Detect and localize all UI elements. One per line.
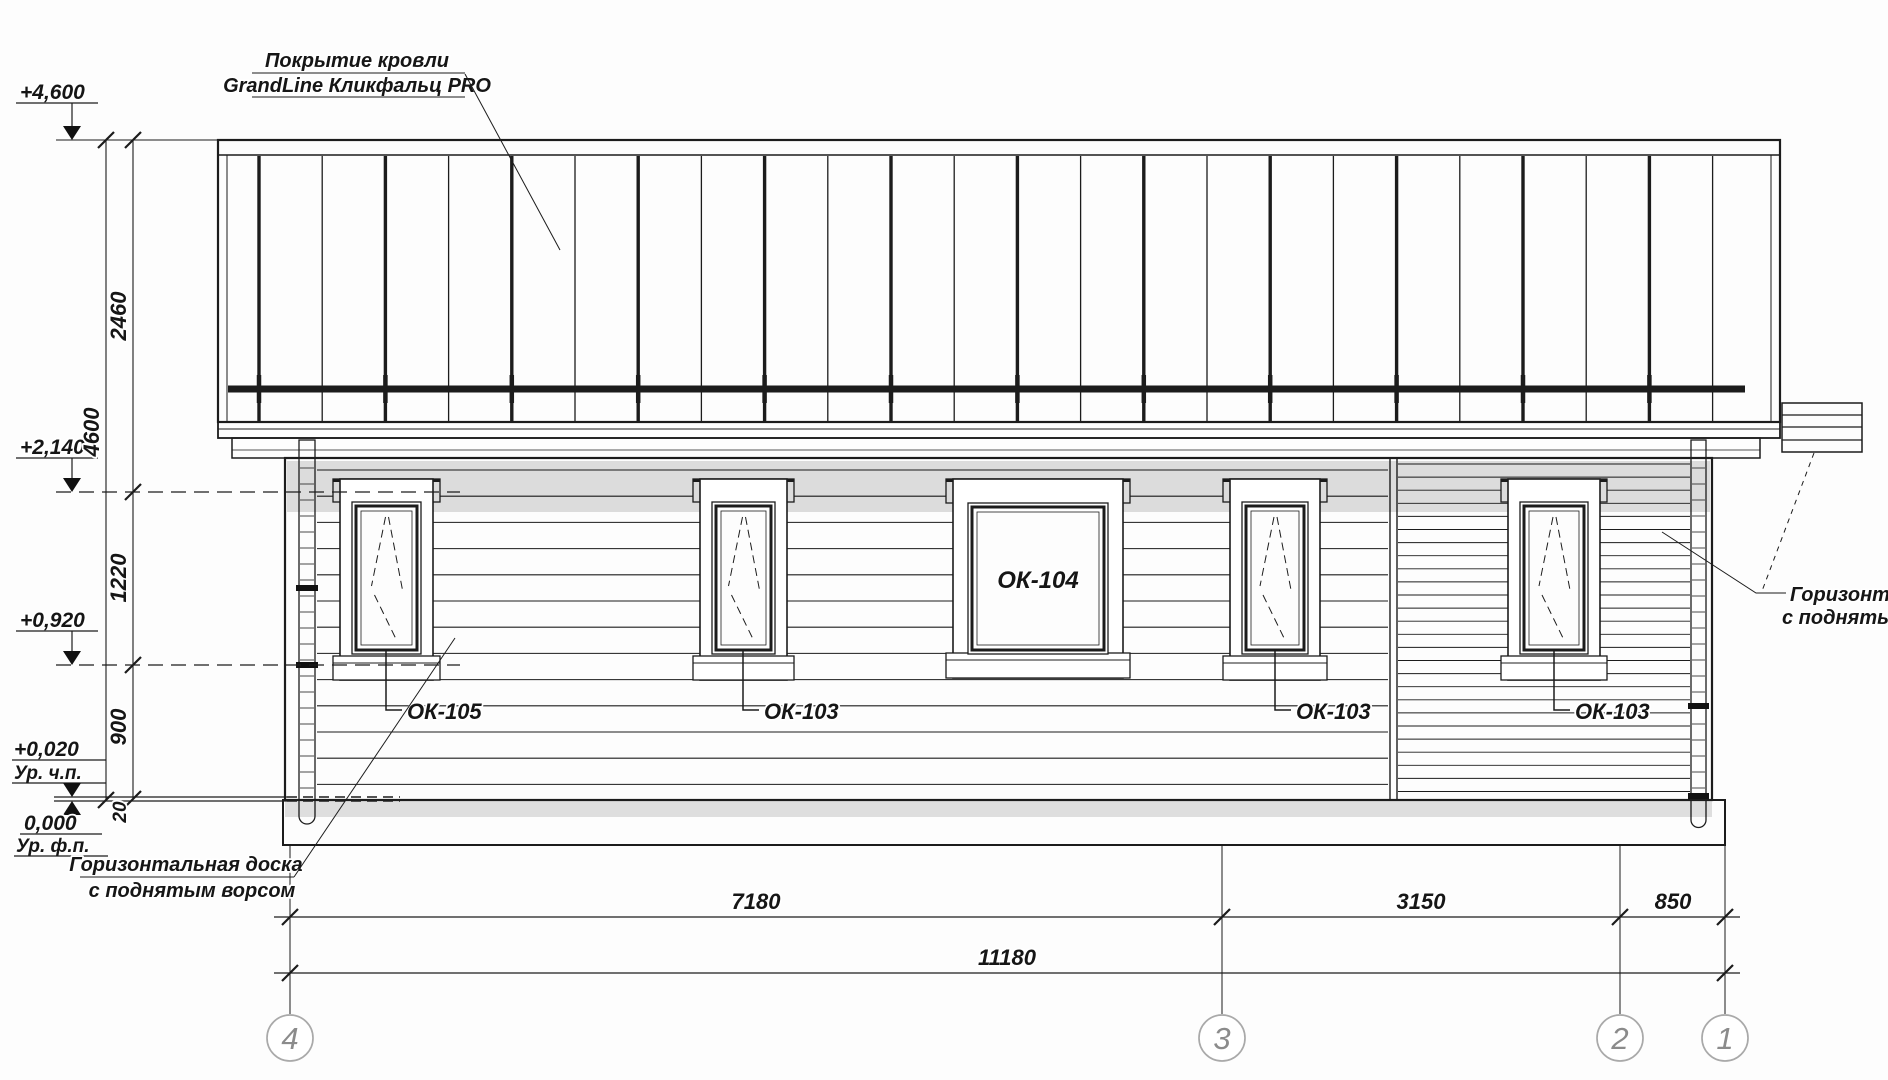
dim-20: 20 bbox=[110, 801, 131, 824]
roof bbox=[218, 140, 1780, 458]
elevation-mark-0000: 0,000 bbox=[24, 812, 77, 835]
axis-bubble-3: 3 bbox=[1213, 1021, 1230, 1056]
roof-note-line2: GrandLine Кликфальц PRO bbox=[223, 75, 491, 97]
dim-900: 900 bbox=[106, 708, 131, 745]
axis-bubble-4: 4 bbox=[281, 1021, 298, 1056]
axis-bubble-2: 2 bbox=[1610, 1021, 1628, 1056]
roof-note-line1: Покрытие кровли bbox=[265, 50, 449, 72]
elevation-mark-2140: +2,140 bbox=[20, 436, 85, 459]
window-label-ok103-3: ОК-103 bbox=[1575, 699, 1650, 724]
window-label-ok103-1: ОК-103 bbox=[764, 699, 839, 724]
elevation-triangle-icon bbox=[63, 126, 81, 140]
board-note-right-leader-dashed bbox=[1762, 453, 1814, 591]
dimension-ticks bbox=[98, 132, 141, 808]
window-ok103-3 bbox=[1501, 479, 1607, 680]
board-note-right-line2: с поднятым bbox=[1782, 607, 1888, 629]
elevation-triangle-icon bbox=[63, 783, 81, 797]
window-label-ok103-2: ОК-103 bbox=[1296, 699, 1371, 724]
window-label-ok105: ОК-105 bbox=[407, 699, 482, 724]
terrace-boards-right bbox=[1782, 403, 1862, 452]
axis-bubble-1: 1 bbox=[1716, 1021, 1733, 1056]
roof-standing-seams bbox=[259, 156, 1713, 421]
facade-elevation-drawing: ОК-105 ОК-103 ОК-104 ОК-103 ОК-103 +4,60… bbox=[0, 0, 1888, 1080]
elevation-mark-0020-label: Ур. ч.п. bbox=[14, 763, 82, 784]
elevation-triangle-icon bbox=[63, 478, 81, 492]
vertical-dimensions: 2460 4600 1220 900 20 bbox=[79, 132, 141, 824]
dim-7180: 7180 bbox=[732, 889, 782, 914]
foundation-platform bbox=[283, 800, 1725, 845]
roof-soffit bbox=[232, 438, 1760, 458]
elevation-mark-4600: +4,600 bbox=[20, 81, 85, 104]
elevation-mark-0020: +0,020 bbox=[14, 738, 79, 761]
window-ok105 bbox=[333, 479, 440, 680]
board-note-right-line1: Горизонтал bbox=[1790, 584, 1888, 606]
horizontal-dimensions: 7180 3150 850 11180 4 3 2 1 bbox=[267, 845, 1748, 1061]
roof-fascia bbox=[218, 422, 1780, 438]
dim-850: 850 bbox=[1655, 889, 1692, 914]
board-note-left-line1: Горизонтальная доска bbox=[69, 854, 302, 876]
dim-11180: 11180 bbox=[978, 945, 1037, 970]
window-ok103-1 bbox=[693, 479, 794, 680]
window-label-ok104: ОК-104 bbox=[997, 567, 1078, 594]
siding-horizontal-main bbox=[317, 470, 1388, 784]
dim-2460: 2460 bbox=[106, 291, 131, 342]
window-ok103-2 bbox=[1223, 479, 1327, 680]
board-note-left-line2: с поднятым ворсом bbox=[89, 880, 296, 902]
dim-3150: 3150 bbox=[1397, 889, 1447, 914]
elevation-mark-0920: +0,920 bbox=[20, 609, 85, 632]
elevation-triangle-icon bbox=[63, 651, 81, 665]
axis-bubbles: 4 3 2 1 bbox=[267, 1015, 1748, 1061]
drawing-canvas: ОК-105 ОК-103 ОК-104 ОК-103 ОК-103 +4,60… bbox=[0, 0, 1888, 1080]
dim-4600: 4600 bbox=[79, 407, 104, 458]
board-note-right-leader bbox=[1662, 532, 1786, 593]
dim-1220: 1220 bbox=[106, 553, 131, 603]
